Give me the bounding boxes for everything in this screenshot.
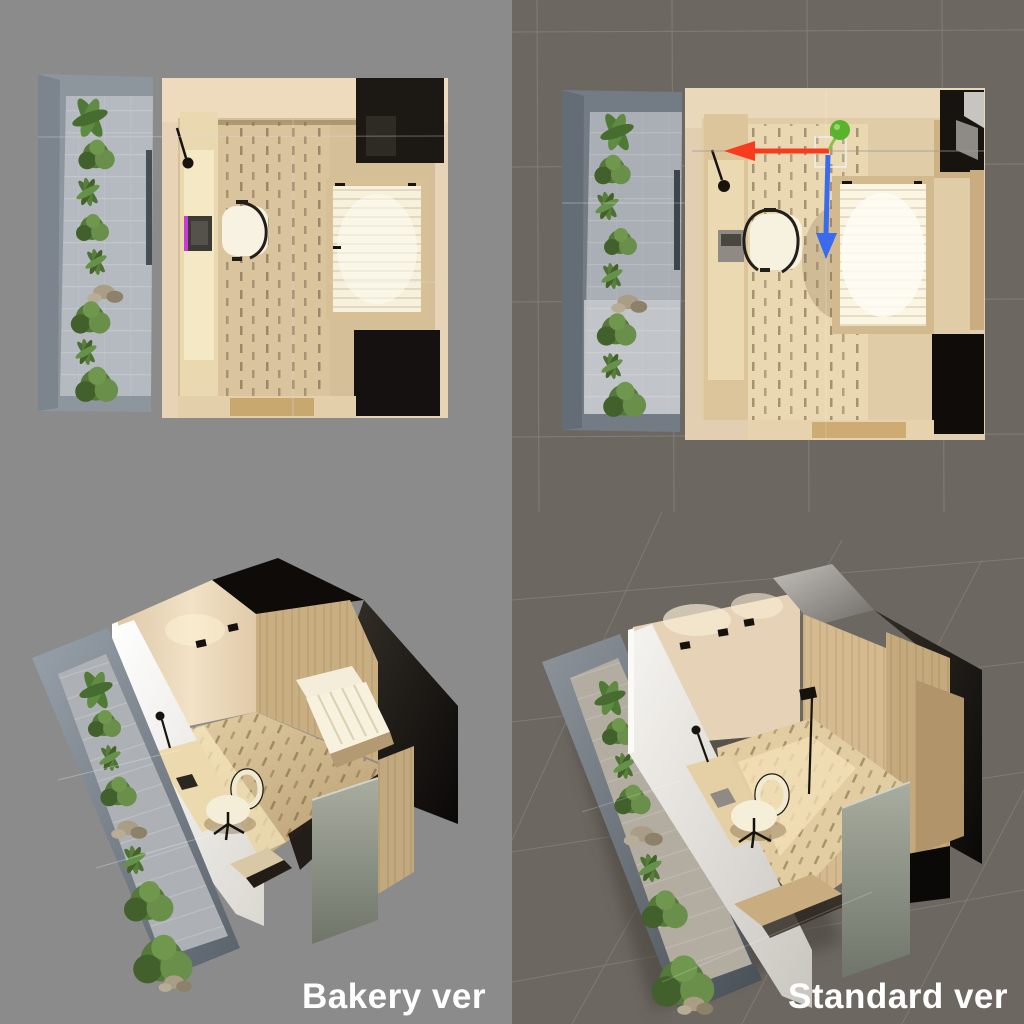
courtyard	[562, 90, 682, 432]
bakery-isometric-render	[0, 512, 512, 1024]
wardrobe-bottom	[932, 334, 984, 434]
courtyard-door	[674, 170, 680, 270]
standard-isometric-render	[512, 512, 1024, 1024]
standard-panel: Standard ver	[512, 0, 1024, 1024]
bakery-top-down-render	[0, 0, 512, 512]
gray-partition	[842, 782, 910, 978]
laptop	[184, 216, 212, 251]
laptop	[718, 230, 744, 262]
room-iso-view	[32, 558, 458, 992]
room-iso-view	[542, 564, 982, 1015]
office-chair	[744, 208, 802, 272]
desk	[704, 114, 748, 420]
room-top-view	[162, 78, 448, 418]
caption-bakery: Bakery ver	[302, 979, 486, 1014]
office-chair	[222, 200, 268, 261]
caption-standard: Standard ver	[788, 979, 1008, 1014]
comparison-image: Bakery ver	[0, 0, 1024, 1024]
bed	[832, 176, 934, 334]
bakery-panel: Bakery ver	[0, 0, 512, 1024]
gray-partition	[312, 778, 378, 944]
standard-top-down-render	[512, 0, 1024, 512]
courtyard-door	[146, 150, 152, 265]
wood-partition	[378, 746, 414, 894]
entry	[748, 420, 934, 440]
bed	[326, 178, 428, 320]
courtyard	[38, 74, 153, 412]
wood-wall-edge	[970, 170, 984, 330]
wardrobe-bottom	[354, 330, 440, 416]
entry	[178, 396, 356, 418]
